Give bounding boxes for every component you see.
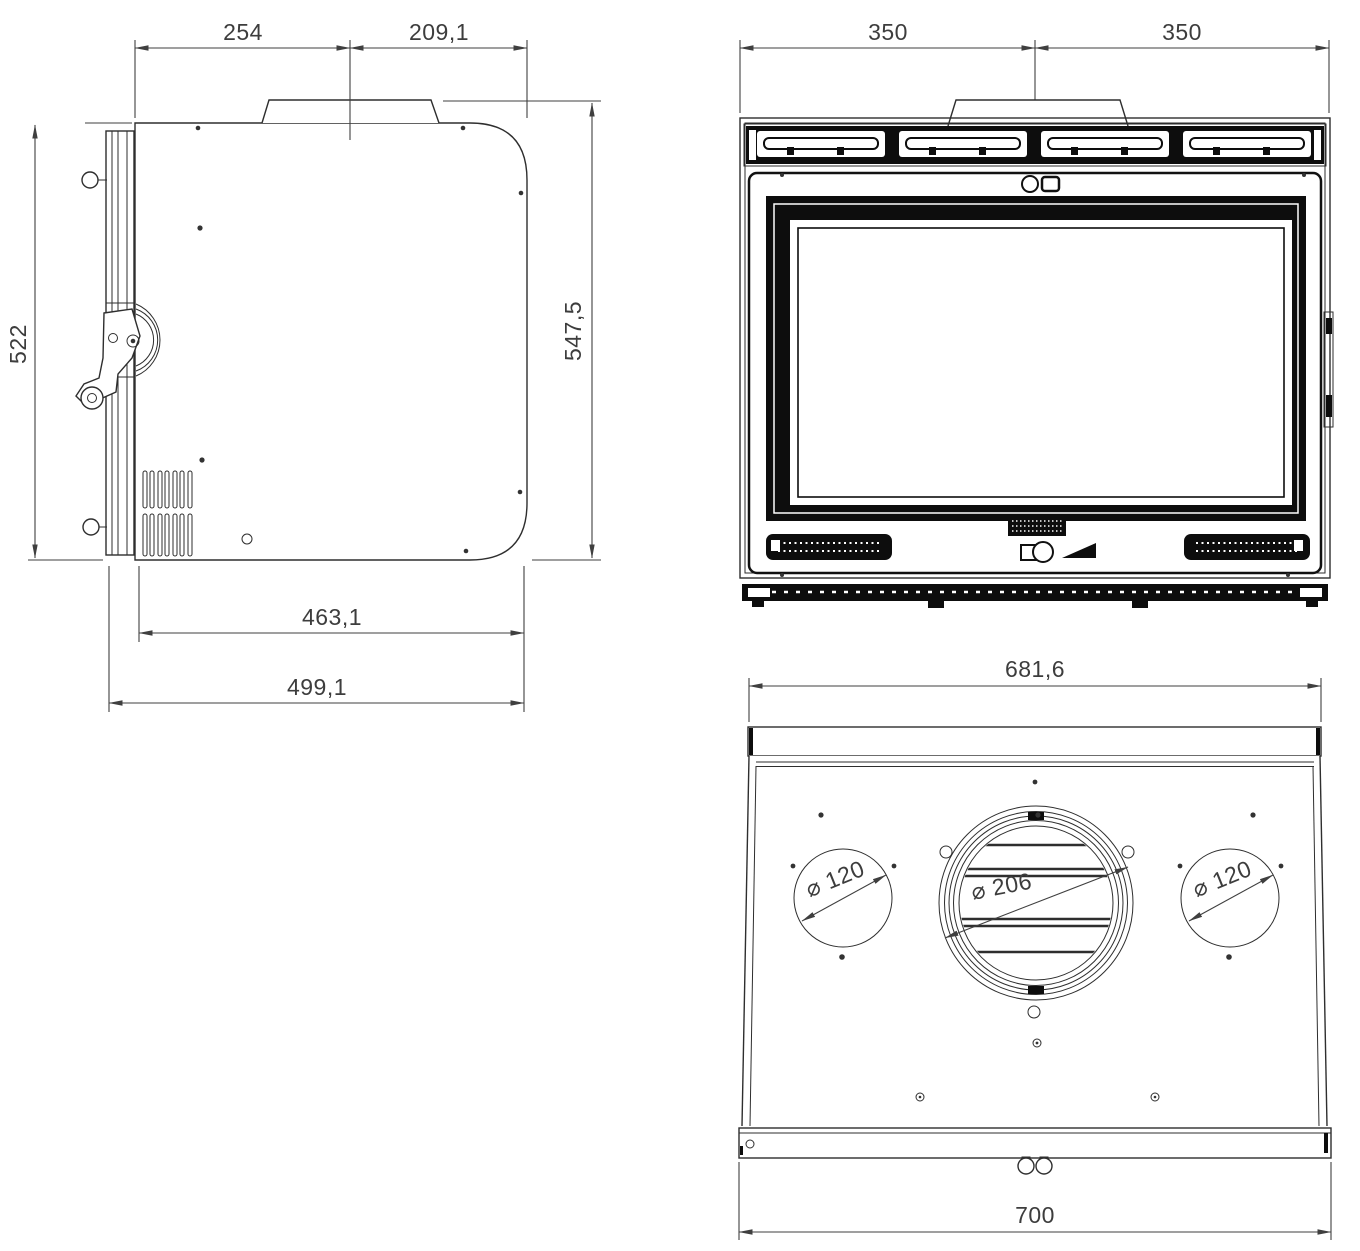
top-front-strip [739,1128,1331,1174]
dim-side-depth-inner: 463,1 [302,604,362,630]
grille-slot-group [1183,131,1311,157]
front-flue-collar [948,100,1128,126]
front-top-grille [744,124,1326,166]
dim-side-height-total: 547,5 [560,301,586,361]
door-bottom-pin [83,519,99,535]
side-body [135,123,527,560]
dim-front-width-right: 350 [1162,19,1202,45]
grille-slot-group [899,131,1027,157]
drawing-canvas: 254 209,1 522 547,5 463,1 499,1 350 350 [0,0,1360,1251]
dim-side-top-front: 254 [223,19,263,45]
dim-side-depth-total: 499,1 [287,674,347,700]
dim-side-height-body: 522 [5,324,31,364]
door-glass [790,220,1292,505]
strip-knob [1036,1158,1052,1174]
grille-slot-group [1041,131,1169,157]
door-top-pin [82,172,98,188]
grille-slot-group [757,131,885,157]
front-view: 350 350 [740,19,1333,608]
top-dimensions-rear: 681,6 [749,656,1321,722]
dim-top-width-rear: 681,6 [1005,656,1065,682]
strip-knob [1018,1158,1034,1174]
dim-top-width-front: 700 [1015,1202,1055,1228]
technical-drawing: 254 209,1 522 547,5 463,1 499,1 350 350 [0,0,1360,1251]
top-rear-flange [748,727,1321,756]
front-bottom-rail [742,584,1328,608]
dim-front-width-left: 350 [868,19,908,45]
top-dimensions-front: 700 [739,1162,1331,1240]
dim-side-top-rear: 209,1 [409,19,469,45]
top-view: 681,6 [739,656,1331,1240]
side-view: 254 209,1 522 547,5 463,1 499,1 [5,19,601,712]
